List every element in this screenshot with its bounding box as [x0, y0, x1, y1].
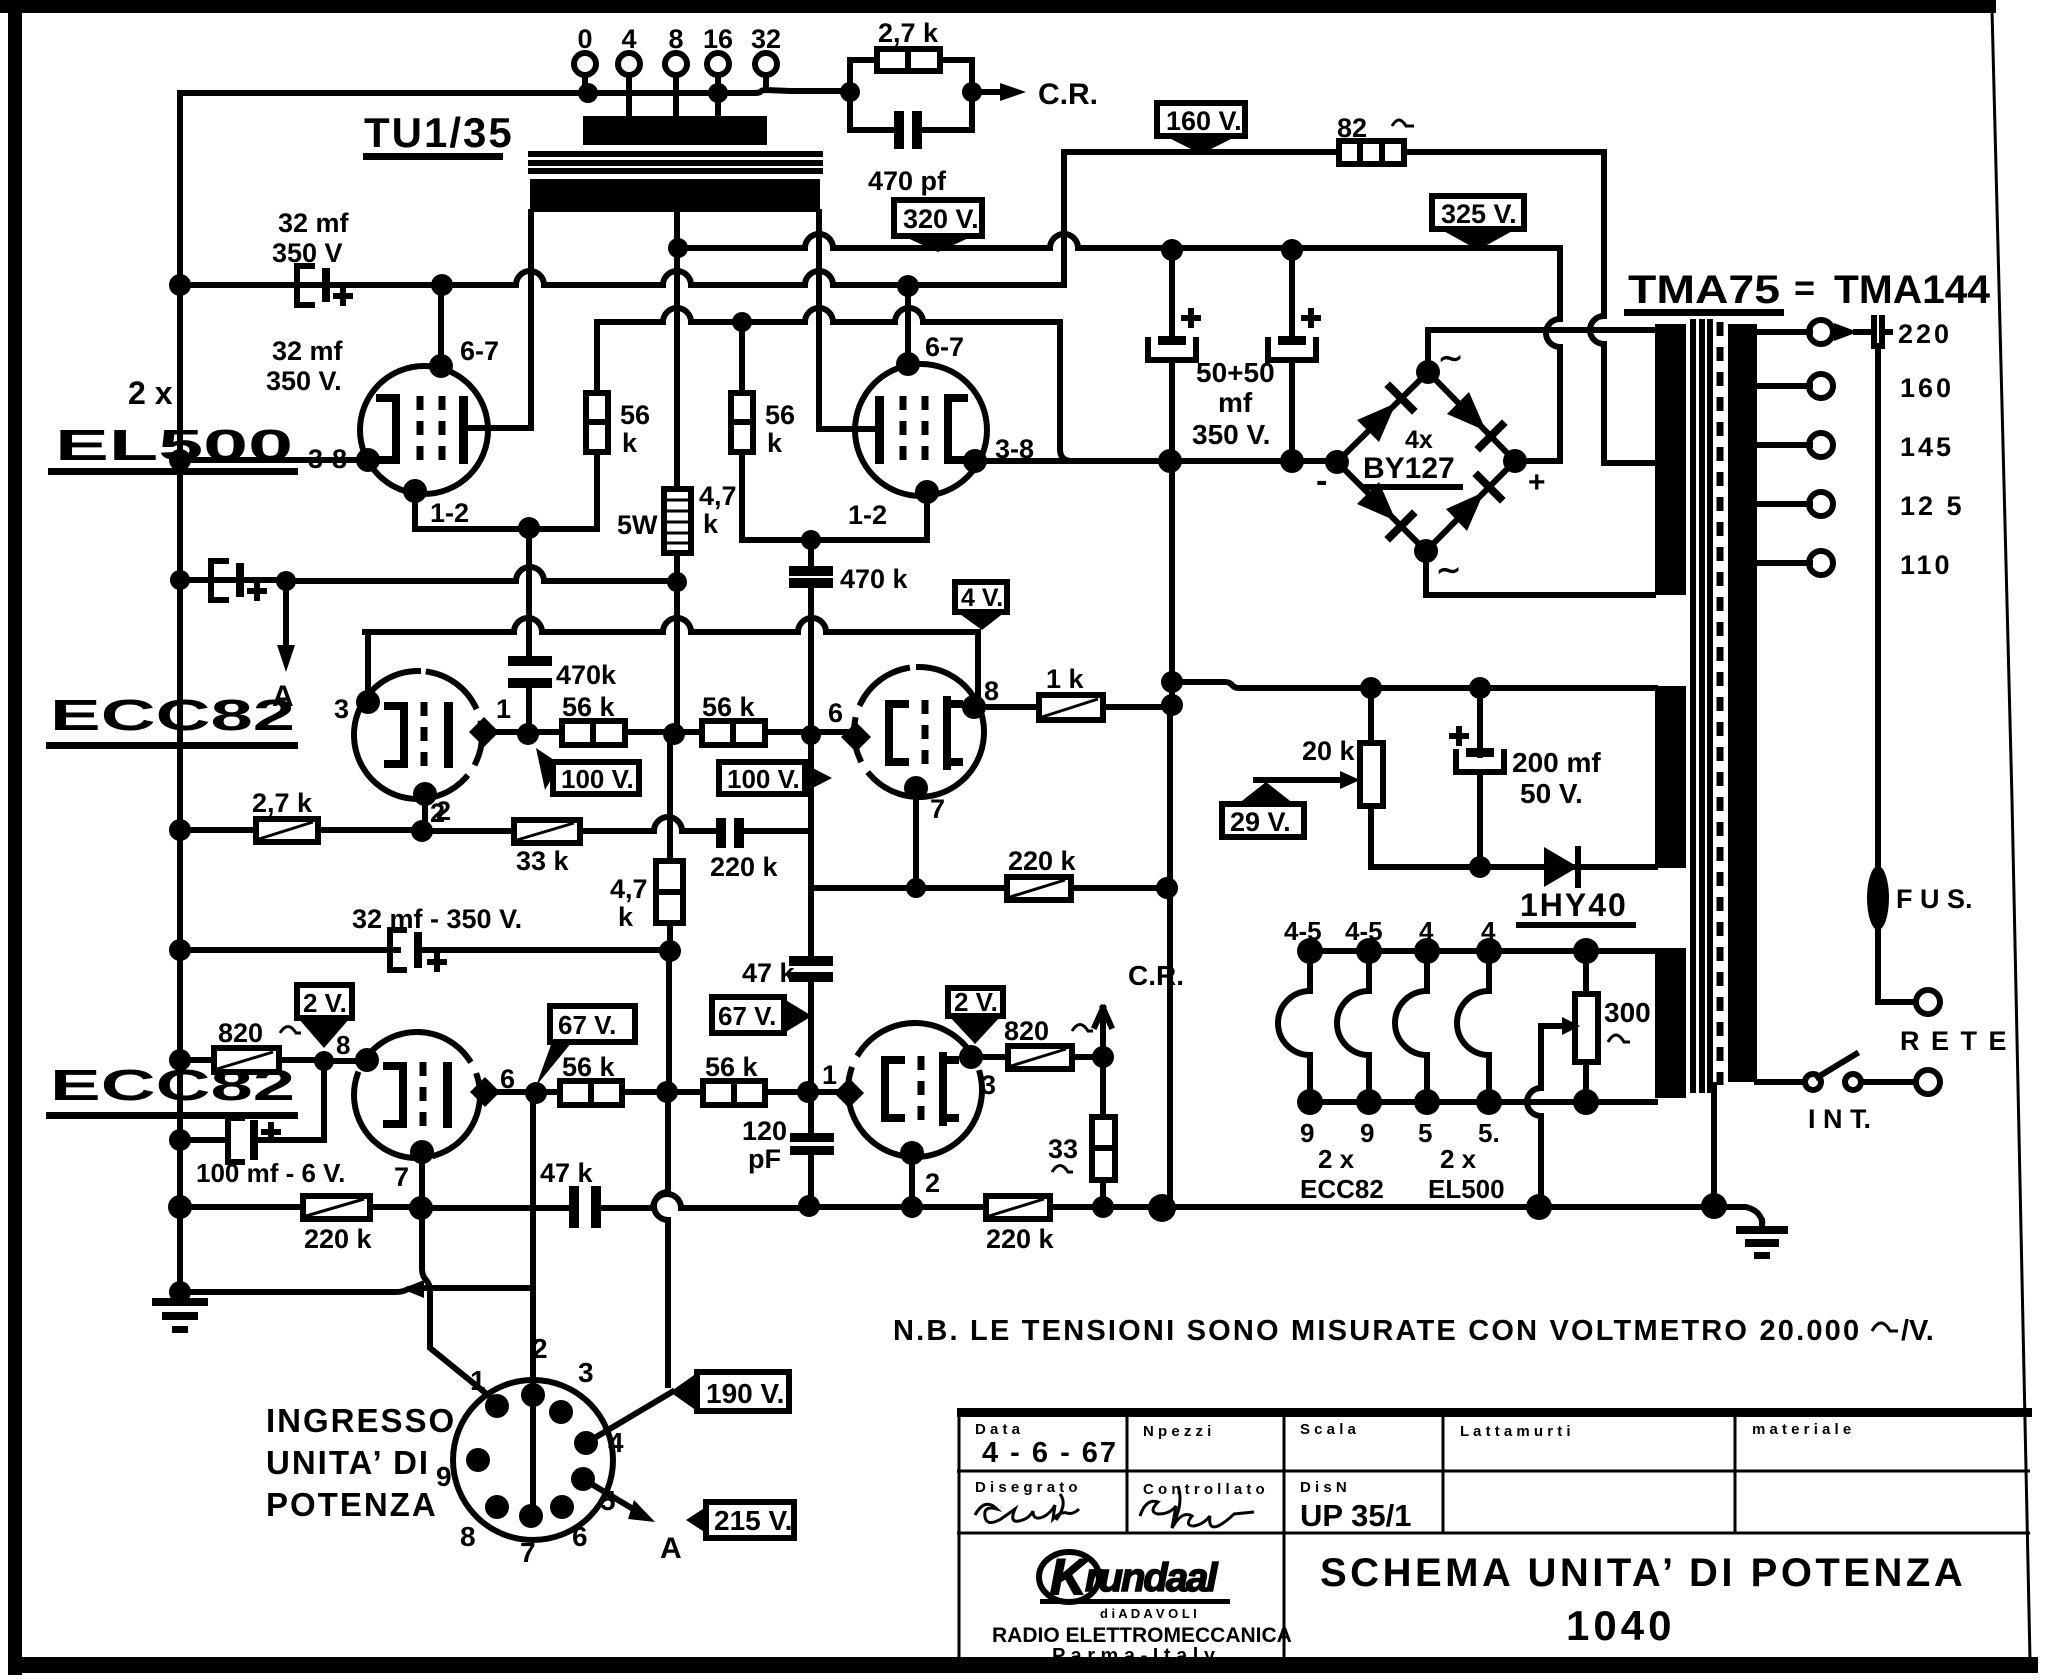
svg-text:4-5: 4-5: [1345, 916, 1383, 946]
svg-text:2 V.: 2 V.: [303, 988, 347, 1018]
svg-text:350 V.: 350 V.: [266, 366, 342, 396]
svg-text:=: =: [1794, 267, 1815, 308]
svg-text:2 V.: 2 V.: [954, 987, 998, 1017]
svg-text:3: 3: [981, 1070, 996, 1100]
svg-text:ECC82: ECC82: [1300, 1174, 1384, 1204]
svg-text:d i A D A V O L I: d i A D A V O L I: [1100, 1606, 1197, 1621]
svg-text:N p e z z i: N p e z z i: [1143, 1423, 1211, 1440]
svg-text:2,7 k: 2,7 k: [878, 18, 939, 48]
svg-text:300: 300: [1604, 997, 1651, 1028]
svg-text:6: 6: [828, 698, 843, 728]
svg-text:220: 220: [1898, 319, 1952, 349]
svg-text:56: 56: [620, 400, 650, 430]
svg-text:-: -: [1316, 462, 1327, 500]
svg-text:820: 820: [1004, 1016, 1049, 1046]
svg-text:1: 1: [470, 1365, 486, 1396]
svg-text:2 x: 2 x: [1318, 1144, 1355, 1174]
svg-text:47 k: 47 k: [742, 958, 796, 988]
svg-text:220 k: 220 k: [710, 852, 779, 882]
svg-text:TMA75: TMA75: [1628, 268, 1780, 312]
svg-text:3: 3: [578, 1357, 594, 1388]
svg-text:320 V.: 320 V.: [903, 204, 979, 234]
svg-text:9: 9: [436, 1461, 452, 1492]
svg-text:k: k: [703, 509, 719, 539]
svg-text:8: 8: [668, 24, 683, 54]
svg-text:220 k: 220 k: [986, 1224, 1055, 1254]
svg-text:1040: 1040: [1566, 1602, 1675, 1649]
svg-text:4 V.: 4 V.: [961, 584, 1003, 612]
svg-text:5W: 5W: [617, 510, 658, 540]
svg-text:32 mf: 32 mf: [272, 336, 344, 366]
svg-text:470 k: 470 k: [840, 564, 909, 594]
svg-text:2: 2: [436, 796, 451, 826]
svg-text:16: 16: [703, 24, 733, 54]
svg-text:32: 32: [751, 24, 781, 54]
svg-text:470 pf: 470 pf: [868, 166, 947, 196]
svg-text:k: k: [767, 428, 783, 458]
svg-text:215 V.: 215 V.: [714, 1505, 792, 1536]
svg-text:2 x: 2 x: [128, 375, 173, 411]
svg-text:220 k: 220 k: [304, 1224, 373, 1254]
svg-text:N.B. LE TENSIONI SONO MISURATE: N.B. LE TENSIONI SONO MISURATE CON VOLTM…: [893, 1315, 1861, 1347]
svg-text:160: 160: [1900, 373, 1954, 403]
svg-text:TMA144: TMA144: [1834, 268, 1991, 312]
svg-text:4 - 6 - 67: 4 - 6 - 67: [982, 1437, 1118, 1469]
svg-text:+: +: [1528, 466, 1546, 499]
svg-text:D i s e g r a t o: D i s e g r a t o: [975, 1479, 1078, 1496]
svg-text:4-5: 4-5: [1284, 916, 1322, 946]
svg-text:4,7: 4,7: [610, 874, 648, 904]
svg-text:EL500: EL500: [1428, 1174, 1505, 1204]
svg-text:67 V.: 67 V.: [718, 1001, 776, 1031]
svg-text:k: k: [618, 902, 634, 932]
svg-text:2: 2: [925, 1168, 940, 1198]
svg-text:470k: 470k: [556, 660, 617, 690]
svg-text:C.R.: C.R.: [1128, 960, 1184, 991]
svg-text:4: 4: [621, 24, 636, 54]
svg-text:4: 4: [1481, 916, 1496, 946]
svg-text:F U S.: F U S.: [1896, 884, 1973, 914]
svg-text:BY127: BY127: [1363, 452, 1455, 485]
svg-text:820: 820: [218, 1018, 263, 1048]
svg-text:TU1/35: TU1/35: [364, 109, 514, 156]
svg-text:325 V.: 325 V.: [1441, 199, 1517, 229]
svg-text:5: 5: [1418, 1118, 1432, 1148]
svg-text:2,7 k: 2,7 k: [252, 788, 313, 818]
svg-text:56: 56: [765, 400, 795, 430]
svg-text:145: 145: [1900, 432, 1954, 462]
svg-text:D i s N: D i s N: [1300, 1479, 1347, 1496]
svg-text:m a t e r i a l e: m a t e r i a l e: [1752, 1421, 1851, 1438]
svg-text:UNITA’ DI: UNITA’ DI: [266, 1444, 430, 1481]
svg-text:6: 6: [572, 1521, 588, 1552]
svg-text:33 k: 33 k: [516, 846, 570, 876]
svg-text:A: A: [660, 1532, 682, 1565]
svg-text:8: 8: [336, 1030, 350, 1060]
svg-text:1HY40: 1HY40: [1520, 887, 1628, 923]
svg-text:12 5: 12 5: [1900, 491, 1965, 521]
svg-text:20 k: 20 k: [1302, 736, 1356, 766]
svg-text:k: k: [622, 428, 638, 458]
svg-text:350 V: 350 V: [272, 238, 343, 268]
svg-text:2: 2: [532, 1333, 548, 1364]
svg-text:0: 0: [577, 24, 592, 54]
svg-text:I N T.: I N T.: [1808, 1104, 1871, 1134]
svg-text:120: 120: [742, 1116, 787, 1146]
svg-text:100 V.: 100 V.: [727, 764, 800, 794]
svg-text:3: 3: [334, 694, 349, 724]
svg-text:rundaal: rundaal: [1085, 1556, 1218, 1600]
svg-text:R E T E: R E T E: [1900, 1026, 2009, 1056]
svg-text:pF: pF: [748, 1144, 781, 1174]
svg-text:K: K: [1050, 1549, 1090, 1605]
svg-text:56 k: 56 k: [702, 692, 756, 722]
svg-text:67 V.: 67 V.: [558, 1010, 616, 1040]
svg-text:32 mf: 32 mf: [278, 208, 350, 238]
svg-text:190 V.: 190 V.: [706, 1378, 784, 1409]
svg-text:S c a l a: S c a l a: [1300, 1421, 1357, 1438]
svg-text:6-7: 6-7: [925, 332, 964, 362]
svg-text:160 V.: 160 V.: [1166, 106, 1242, 136]
svg-text:1 k: 1 k: [1046, 664, 1085, 694]
svg-text:56 k: 56 k: [562, 1052, 616, 1082]
svg-text:5.: 5.: [1478, 1118, 1500, 1148]
svg-text:9: 9: [1300, 1118, 1314, 1148]
svg-text:SCHEMA UNITA’ DI POTENZA: SCHEMA UNITA’ DI POTENZA: [1320, 1551, 1966, 1595]
svg-text:50+50: 50+50: [1196, 357, 1275, 388]
svg-text:32 mf - 350 V.: 32 mf - 350 V.: [352, 904, 522, 934]
svg-text:9: 9: [1360, 1118, 1374, 1148]
svg-text:D a t a: D a t a: [975, 1421, 1021, 1438]
svg-text:220 k: 220 k: [1008, 846, 1077, 876]
svg-text:50 V.: 50 V.: [1520, 778, 1583, 809]
svg-text:56 k: 56 k: [705, 1052, 759, 1082]
svg-text:∼: ∼: [1438, 342, 1463, 375]
svg-text:350 V.: 350 V.: [1192, 419, 1270, 450]
svg-text:7: 7: [520, 1537, 536, 1568]
svg-text:56 k: 56 k: [562, 692, 616, 722]
svg-text:100 V.: 100 V.: [561, 764, 634, 794]
svg-text:∼: ∼: [1436, 554, 1461, 587]
svg-text:8: 8: [984, 676, 999, 706]
svg-text:C o n t r o l l a t o: C o n t r o l l a t o: [1143, 1481, 1265, 1498]
svg-text:POTENZA: POTENZA: [266, 1486, 438, 1523]
svg-text:7: 7: [394, 1162, 409, 1192]
svg-text:INGRESSO: INGRESSO: [266, 1402, 456, 1439]
svg-text:7: 7: [930, 794, 945, 824]
svg-text:L a t t a m u r t i: L a t t a m u r t i: [1460, 1423, 1571, 1440]
svg-text:UP 35/1: UP 35/1: [1300, 1498, 1411, 1533]
svg-text:47 k: 47 k: [540, 1158, 594, 1188]
svg-text:1-2: 1-2: [848, 500, 887, 530]
svg-text:4x: 4x: [1405, 426, 1433, 454]
svg-text:ECC82: ECC82: [50, 691, 295, 740]
svg-text:/V.: /V.: [1901, 1315, 1934, 1347]
svg-text:2 x: 2 x: [1440, 1144, 1477, 1174]
svg-text:RADIO ELETTROMECCANICA: RADIO ELETTROMECCANICA: [992, 1624, 1292, 1647]
svg-text:1: 1: [822, 1060, 837, 1090]
svg-text:mf: mf: [1218, 387, 1253, 418]
svg-text:100 mf - 6 V.: 100 mf - 6 V.: [196, 1158, 345, 1188]
svg-text:1-2: 1-2: [430, 498, 469, 528]
svg-text:33: 33: [1048, 1134, 1078, 1164]
svg-text:6-7: 6-7: [460, 336, 499, 366]
svg-text:8: 8: [460, 1521, 476, 1552]
svg-text:82: 82: [1337, 113, 1367, 143]
svg-text:P a r m a - I t a l y: P a r m a - I t a l y: [1052, 1645, 1216, 1667]
svg-text:4: 4: [1419, 916, 1434, 946]
svg-text:1: 1: [496, 694, 511, 724]
svg-text:200 mf: 200 mf: [1512, 747, 1601, 778]
svg-text:29 V.: 29 V.: [1230, 807, 1291, 837]
svg-text:110: 110: [1900, 550, 1953, 580]
svg-text:C.R.: C.R.: [1038, 78, 1098, 111]
svg-text:4,7: 4,7: [699, 481, 737, 511]
